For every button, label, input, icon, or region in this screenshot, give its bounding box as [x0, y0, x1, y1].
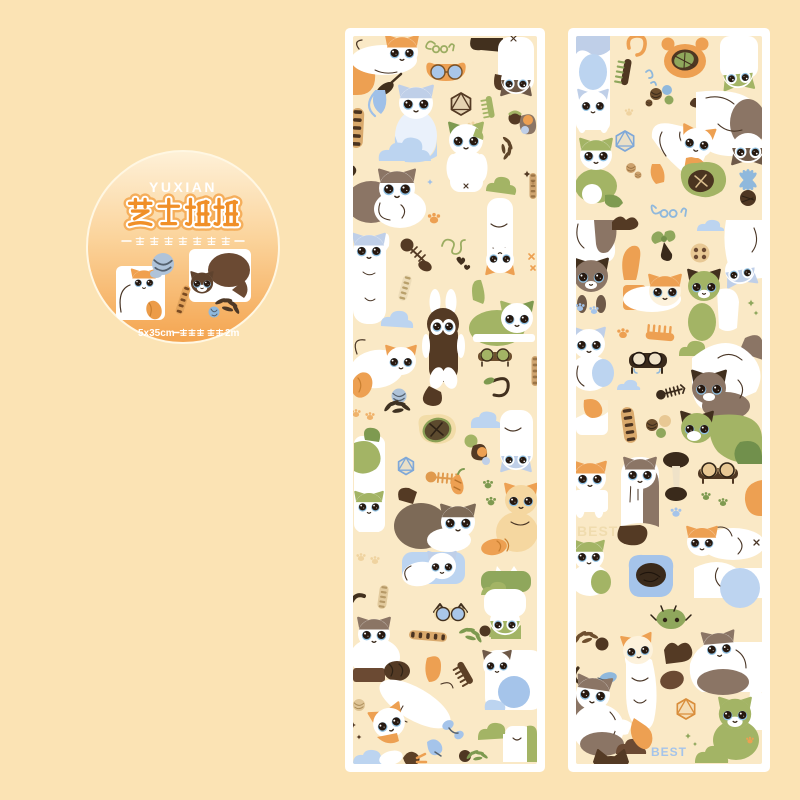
svg-text:2m: 2m — [225, 328, 240, 339]
svg-text:BEST: BEST — [651, 745, 687, 759]
svg-text:YUXIAN: YUXIAN — [149, 179, 217, 195]
svg-text:BEST: BEST — [577, 523, 618, 539]
svg-text:5x35cm: 5x35cm — [138, 328, 175, 339]
